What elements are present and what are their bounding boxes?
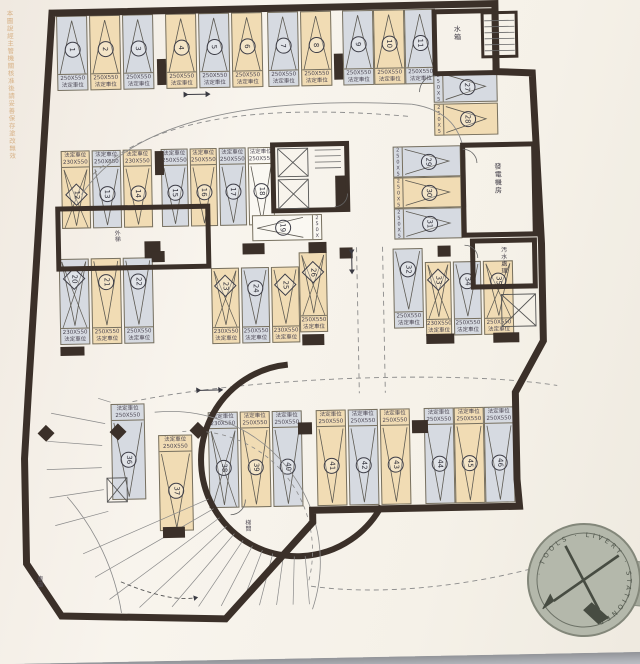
stall-body: 9 [343,11,373,69]
stall-label: 法定車位250X550 [220,148,245,164]
parking-stall-21: 21250X550法定車位 [91,258,123,345]
stall-label: 法定車位230X550 [62,151,89,168]
stall-size-label: 250X550 [314,215,321,239]
stall-body: 29 [403,146,461,176]
stall-number: 6 [239,38,255,54]
stall-size-label: 250X550 [93,329,121,336]
stall-size-label: 250X550 [349,417,377,424]
stall-number: 27 [459,78,475,94]
stall-body: 33 [426,263,451,319]
stall-chevron-icon [454,262,481,320]
stall-label: 法定車位250X550 [93,151,120,168]
parking-stall-29: 250X550法定車位29 [393,145,462,177]
stall-body: 25 [272,267,299,325]
stall-size-label: 250X550 [243,328,269,335]
parking-stall-36: 法定車位250X55036 [110,403,146,500]
stall-body: 8 [301,12,331,70]
parking-stall-3: 3250X550法定車位 [122,14,154,90]
parking-stall-31: 250X550法定車位31 [394,207,463,239]
stall-type-label: 法定車位 [93,152,120,159]
stall-body: 4 [166,14,196,72]
stall-size-label: 250X550 [344,70,373,77]
room-label-stair-hall: 梯間 [243,519,252,531]
stall-number: 35 [490,272,506,288]
stall-type-label: 法定車位 [427,327,451,334]
stall-size-label: 250X550 [124,74,153,81]
stall-number: 32 [400,261,416,277]
stall-body: 46 [485,423,514,502]
stall-type-label: 法定車位 [241,413,269,420]
stall-number: 38 [216,460,232,476]
stall-type-label: 法定車位 [124,81,153,88]
parking-stall-2: 2250X550法定車位 [89,15,121,91]
stall-number: 22 [130,273,146,289]
stall-size-label: 250X550 [455,320,481,327]
parking-stall-32: 32250X550法定車位 [393,248,425,329]
parking-stall-7: 7250X550法定車位 [267,11,299,87]
stall-number: 5 [206,39,222,55]
stall-number: 44 [432,456,448,472]
stall-type-label: 法定車位 [273,412,301,419]
stall-label: 230X550法定車位 [61,327,89,344]
stall-type-label: 法定車位 [62,152,89,159]
stall-label: 法定車位250X550 [455,408,483,425]
stall-type-label: 法定車位 [344,76,373,83]
stall-body: 43 [381,425,410,504]
stall-size-label: 250X550 [301,317,327,324]
stall-body: 34 [454,262,481,318]
stall-size-label: 250X550 [200,73,229,80]
stall-type-label: 法定車位 [61,336,89,343]
parking-stall-16: 法定車位250X55016 [190,148,218,227]
stall-body: 22 [124,258,153,327]
stall-label: 250X550法定車位 [395,311,423,328]
stall-label: 230X550法定車位 [427,319,451,335]
stall-label: 法定車位230X550 [209,413,237,430]
stall-number: 10 [381,36,397,52]
stall-size-label: 250X550 [375,69,404,76]
stall-label: 250X550法定車位 [167,71,196,88]
stall-size-label: 250X550 [435,73,442,102]
parking-stall-1: 1250X550法定車位 [56,15,88,91]
stall-number: 26 [302,260,325,283]
parking-stall-23: 23230X550法定車位 [211,268,240,345]
stall-size-label: 250X550 [162,157,187,164]
stall-label: 法定車位250X550 [249,148,273,164]
stall-body: 45 [455,424,484,503]
parking-stall-25: 25230X550法定車位 [271,266,300,343]
stall-number: 16 [196,184,212,200]
parking-stall-11: 11250X550法定車位 [404,9,436,85]
stall-body: 6 [232,13,262,71]
stall-label: 250X550法定車位 [312,215,321,239]
stall-type-label: 法定車位 [485,408,513,415]
stall-body: 2 [90,16,120,74]
stall-size-label: 250X550 [125,328,153,335]
stall-label: 250X550法定車位 [243,326,269,342]
stall-number: 25 [274,274,297,297]
stall-type-label: 法定車位 [406,75,435,82]
stall-body: 32 [394,249,423,312]
stall-body: 21 [92,259,121,328]
parking-stall-14: 法定車位230X55014 [123,149,153,228]
parking-stall-39: 法定車位250X55039 [240,411,272,508]
stall-type-label: 法定車位 [213,335,239,342]
stall-number: 7 [275,38,291,54]
stall-number: 11 [412,35,428,51]
stall-type-label: 法定車位 [301,323,327,330]
stall-body: 19 [253,215,312,240]
room-label-outer-stair: 外梯 [112,230,121,242]
stall-type-label: 法定車位 [249,149,273,156]
stall-size-label: 250X550 [273,419,301,426]
stall-size-label: 250X550 [485,319,513,326]
stall-size-label: 250X550 [436,105,443,135]
stall-type-label: 法定車位 [269,78,298,85]
stall-body: 39 [241,428,270,507]
stall-body: 3 [123,15,153,73]
stall-body: 20 [60,259,89,328]
stall-size-label: 250X550 [425,416,453,423]
parking-stall-15: 法定車位250X55015 [161,149,189,228]
stall-label: 法定車位250X550 [159,436,191,453]
parking-stall-9: 9250X550法定車位 [342,10,374,86]
stall-number: 29 [420,153,436,169]
stall-size-label: 250X550 [249,155,273,162]
parking-stall-8: 8250X550法定車位 [300,11,332,87]
stall-body: 23 [212,269,239,327]
stall-number: 39 [248,459,264,475]
stall-number: 19 [274,220,290,236]
stall-size-label: 250X550 [269,71,298,78]
stall-size-label: 230X550 [213,329,239,336]
stall-label: 230X550法定車位 [273,325,299,341]
parking-stall-24: 24250X550法定車位 [241,267,270,344]
parking-stall-46: 法定車位250X55046 [484,406,516,503]
room-label-generator: 發電機房 [493,162,504,194]
stall-type-label: 法定車位 [395,320,423,327]
stall-body: 16 [191,165,217,225]
stall-size-label: 230X550 [61,329,89,336]
stall-size-label: 250X550 [93,158,120,165]
parking-stall-37: 法定車位250X55037 [158,434,194,531]
stall-type-label: 法定車位 [124,151,151,158]
parking-stall-38: 法定車位230X55038 [208,412,240,509]
stall-chevron-icon [92,259,121,330]
parking-stall-26: 26250X550法定車位 [299,252,329,333]
stall-number: 31 [422,215,438,231]
stall-type-label: 法定車位 [209,414,237,421]
parking-stall-22: 22250X550法定車位 [123,257,155,344]
stall-body: 17 [220,164,246,224]
stall-label: 250X550法定車位 [455,318,481,334]
stall-number: 21 [98,274,114,290]
stall-type-label: 法定車位 [91,81,120,88]
stall-number: 46 [492,454,508,470]
stall-chevron-icon [124,258,153,329]
stall-label: 法定車位250X550 [485,407,513,424]
stall-size-label: 250X550 [395,313,423,320]
parking-stall-27: 250X550法定車位27 [433,71,498,103]
parking-stall-18: 法定車位250X55018 [248,147,275,225]
stall-size-label: 250X550 [58,75,87,82]
stall-type-label: 法定車位 [455,326,481,333]
parking-stall-42: 法定車位250X55042 [348,409,380,506]
stall-label: 法定車位250X550 [112,404,144,421]
stall-label: 法定車位230X550 [124,150,151,167]
stall-body: 10 [374,10,404,68]
stall-label: 250X550法定車位 [200,71,229,88]
stall-type-label: 法定車位 [200,79,229,86]
stall-size-label: 230X550 [427,321,451,328]
stall-chevron-icon [394,249,423,314]
stall-size-label: 230X550 [62,159,89,166]
stall-label: 250X550法定車位 [91,73,120,90]
stall-number: 28 [460,111,476,127]
stall-label: 250X550法定車位 [124,72,153,89]
room-label-water-tank: 水箱 [452,25,462,41]
stall-label: 法定車位250X550 [162,150,187,166]
stall-type-label: 法定車位 [243,334,269,341]
stall-size-label: 250X550 [302,71,331,78]
parking-stall-10: 10250X550法定車位 [373,9,405,85]
ramp-label: 車道 [35,575,44,587]
stall-label: 法定車位250X550 [273,411,301,428]
stall-body: 41 [317,427,346,506]
stall-number: 37 [168,483,184,499]
stall-label: 230X550法定車位 [213,327,239,343]
stall-body: 12 [62,167,90,228]
stall-number: 17 [225,184,241,200]
stall-label: 法定車位250X550 [241,412,269,429]
stall-label: 250X550法定車位 [301,315,327,331]
stall-number: 18 [253,183,269,199]
stall-body: 1 [57,16,87,74]
stall-size-label: 250X550 [159,443,191,450]
stall-type-label: 法定車位 [317,412,345,419]
stall-body: 27 [443,72,497,102]
stall-type-label: 法定車位 [455,409,483,416]
stall-type-label: 法定車位 [233,79,262,86]
stall-number: 23 [214,275,237,298]
stall-body: 14 [124,166,152,227]
stall-number: 34 [459,273,475,289]
stall-body: 40 [273,427,302,506]
stall-label: 法定車位250X550 [317,411,345,428]
parking-stall-45: 法定車位250X55045 [454,407,486,504]
stall-size-label: 250X550 [167,73,196,80]
stall-size-label: 250X550 [381,417,409,424]
stall-number: 15 [167,185,183,201]
stall-number: 36 [120,452,136,468]
stall-size-label: 250X550 [455,415,483,422]
stall-size-label: 230X550 [124,158,151,165]
stall-number: 40 [280,459,296,475]
stall-number: 41 [324,458,340,474]
stall-body: 11 [405,10,435,68]
stall-label: 250X550法定車位 [269,69,298,86]
stall-label: 250X550法定車位 [302,69,331,86]
parking-stall-12: 法定車位230X55012 [61,150,91,229]
stall-size-label: 250X550 [406,69,435,76]
stall-type-label: 法定車位 [485,326,513,333]
stall-label: 250X550法定車位 [406,67,435,84]
stall-chevron-icon [242,268,269,328]
stall-body: 37 [159,452,192,531]
parking-stall-30: 250X550法定車位30 [393,176,462,208]
stall-body: 13 [93,167,121,228]
stall-size-label: 250X550 [220,156,245,163]
stall-body: 31 [404,208,462,238]
stall-type-label: 法定車位 [162,151,187,158]
stall-label: 法定車位250X550 [191,149,216,165]
stall-label: 250X550法定車位 [375,67,404,84]
stall-label: 250X550法定車位 [58,73,87,90]
parking-stalls-layer: 1250X550法定車位2250X550法定車位3250X550法定車位4250… [0,0,640,644]
stall-body: 42 [349,426,378,505]
parking-stall-43: 法定車位250X55043 [380,408,412,505]
parking-stall-28: 250X550法定車位28 [434,103,499,136]
stall-number: 24 [247,280,263,296]
stall-label: 250X550法定車位 [344,68,373,85]
parking-stall-19: 19250X550法定車位 [252,214,322,241]
stall-size-label: 250X550 [191,156,216,163]
stall-type-label: 法定車位 [349,411,377,418]
stall-size-label: 250X550 [485,415,513,422]
stall-type-label: 法定車位 [58,82,87,89]
parking-stall-34: 34250X550法定車位 [453,261,482,336]
stall-size-label: 250X550 [241,420,269,427]
photo-of-floorplan: { "document": { "watermark": "本圖說經主管機關核准… [0,0,640,640]
stall-type-label: 法定車位 [381,410,409,417]
stall-body: 26 [300,253,327,315]
stall-size-label: 250X550 [112,412,144,419]
stall-label: 法定車位250X550 [349,410,377,427]
stall-type-label: 法定車位 [425,409,453,416]
parking-floorplan: 本圖說經主管機關核准後請妥善保存塗改無效 1250X550法定車位2250X55… [0,0,640,644]
stall-label: 法定車位250X550 [425,408,453,425]
stall-label: 250X550法定車位 [93,327,121,344]
stall-size-label: 250X550 [317,418,345,425]
parking-stall-33: 33230X550法定車位 [425,261,452,335]
parking-stall-17: 法定車位250X55017 [219,147,247,226]
stall-type-label: 法定車位 [191,150,216,157]
stall-body: 38 [209,429,238,508]
stall-type-label: 法定車位 [125,335,153,342]
stall-body: 7 [268,12,298,70]
stall-body: 36 [112,420,145,499]
stall-number: 4 [173,40,189,56]
stall-type-label: 法定車位 [302,77,331,84]
stall-label: 250X550法定車位 [485,317,513,334]
stall-body: 5 [199,14,229,72]
stall-number: 12 [65,183,88,206]
stall-size-label: 250X550 [91,75,120,82]
stall-size-label: 230X550 [273,327,299,334]
stall-size-label: 230X550 [209,420,237,427]
parking-stall-5: 5250X550法定車位 [198,13,230,89]
stall-type-label: 法定車位 [93,335,121,342]
stall-number: 14 [130,185,146,201]
stall-type-label: 法定車位 [220,149,245,156]
parking-stall-44: 法定車位250X55044 [424,407,456,504]
stall-size-label: 250X550 [396,209,403,238]
stall-number: 1 [64,42,80,58]
stall-number: 3 [130,40,146,56]
stall-label: 250X550法定車位 [233,70,262,87]
stall-body: 15 [162,166,188,226]
parking-stall-41: 法定車位250X55041 [316,410,348,507]
stall-type-label: 法定車位 [167,80,196,87]
parking-stall-40: 法定車位250X55040 [272,410,304,507]
stall-size-label: 250X550 [233,72,262,79]
blueprint-paper: 本圖說經主管機關核准後請妥善保存塗改無效 1250X550法定車位2250X55… [0,0,640,664]
parking-stall-20: 20230X550法定車位 [59,258,91,345]
stall-size-label: 250X550 [395,147,402,176]
stall-body: 44 [425,424,454,503]
stall-number: 9 [350,36,366,52]
room-label-sewage: 汚水處理 [499,246,509,274]
stall-body: 30 [403,177,461,207]
stall-label: 法定車位250X550 [381,409,409,426]
parking-stall-13: 法定車位250X55013 [92,150,122,229]
parking-stall-4: 4250X550法定車位 [165,13,197,89]
stall-size-label: 250X550 [395,178,402,207]
stall-type-label: 法定車位 [273,334,299,341]
stall-number: 13 [99,186,115,202]
stall-number: 2 [97,41,113,57]
stall-body: 28 [444,104,498,135]
stall-label: 250X550法定車位 [125,326,153,343]
stall-number: 20 [63,267,86,290]
stall-number: 33 [427,268,450,291]
stall-number: 45 [462,455,478,471]
stall-number: 30 [421,184,437,200]
stall-number: 8 [308,37,324,53]
parking-stall-6: 6250X550法定車位 [231,12,263,88]
stall-body: 24 [242,268,269,326]
stall-number: 42 [356,457,372,473]
stall-type-label: 法定車位 [375,76,404,83]
stall-number: 43 [388,456,404,472]
